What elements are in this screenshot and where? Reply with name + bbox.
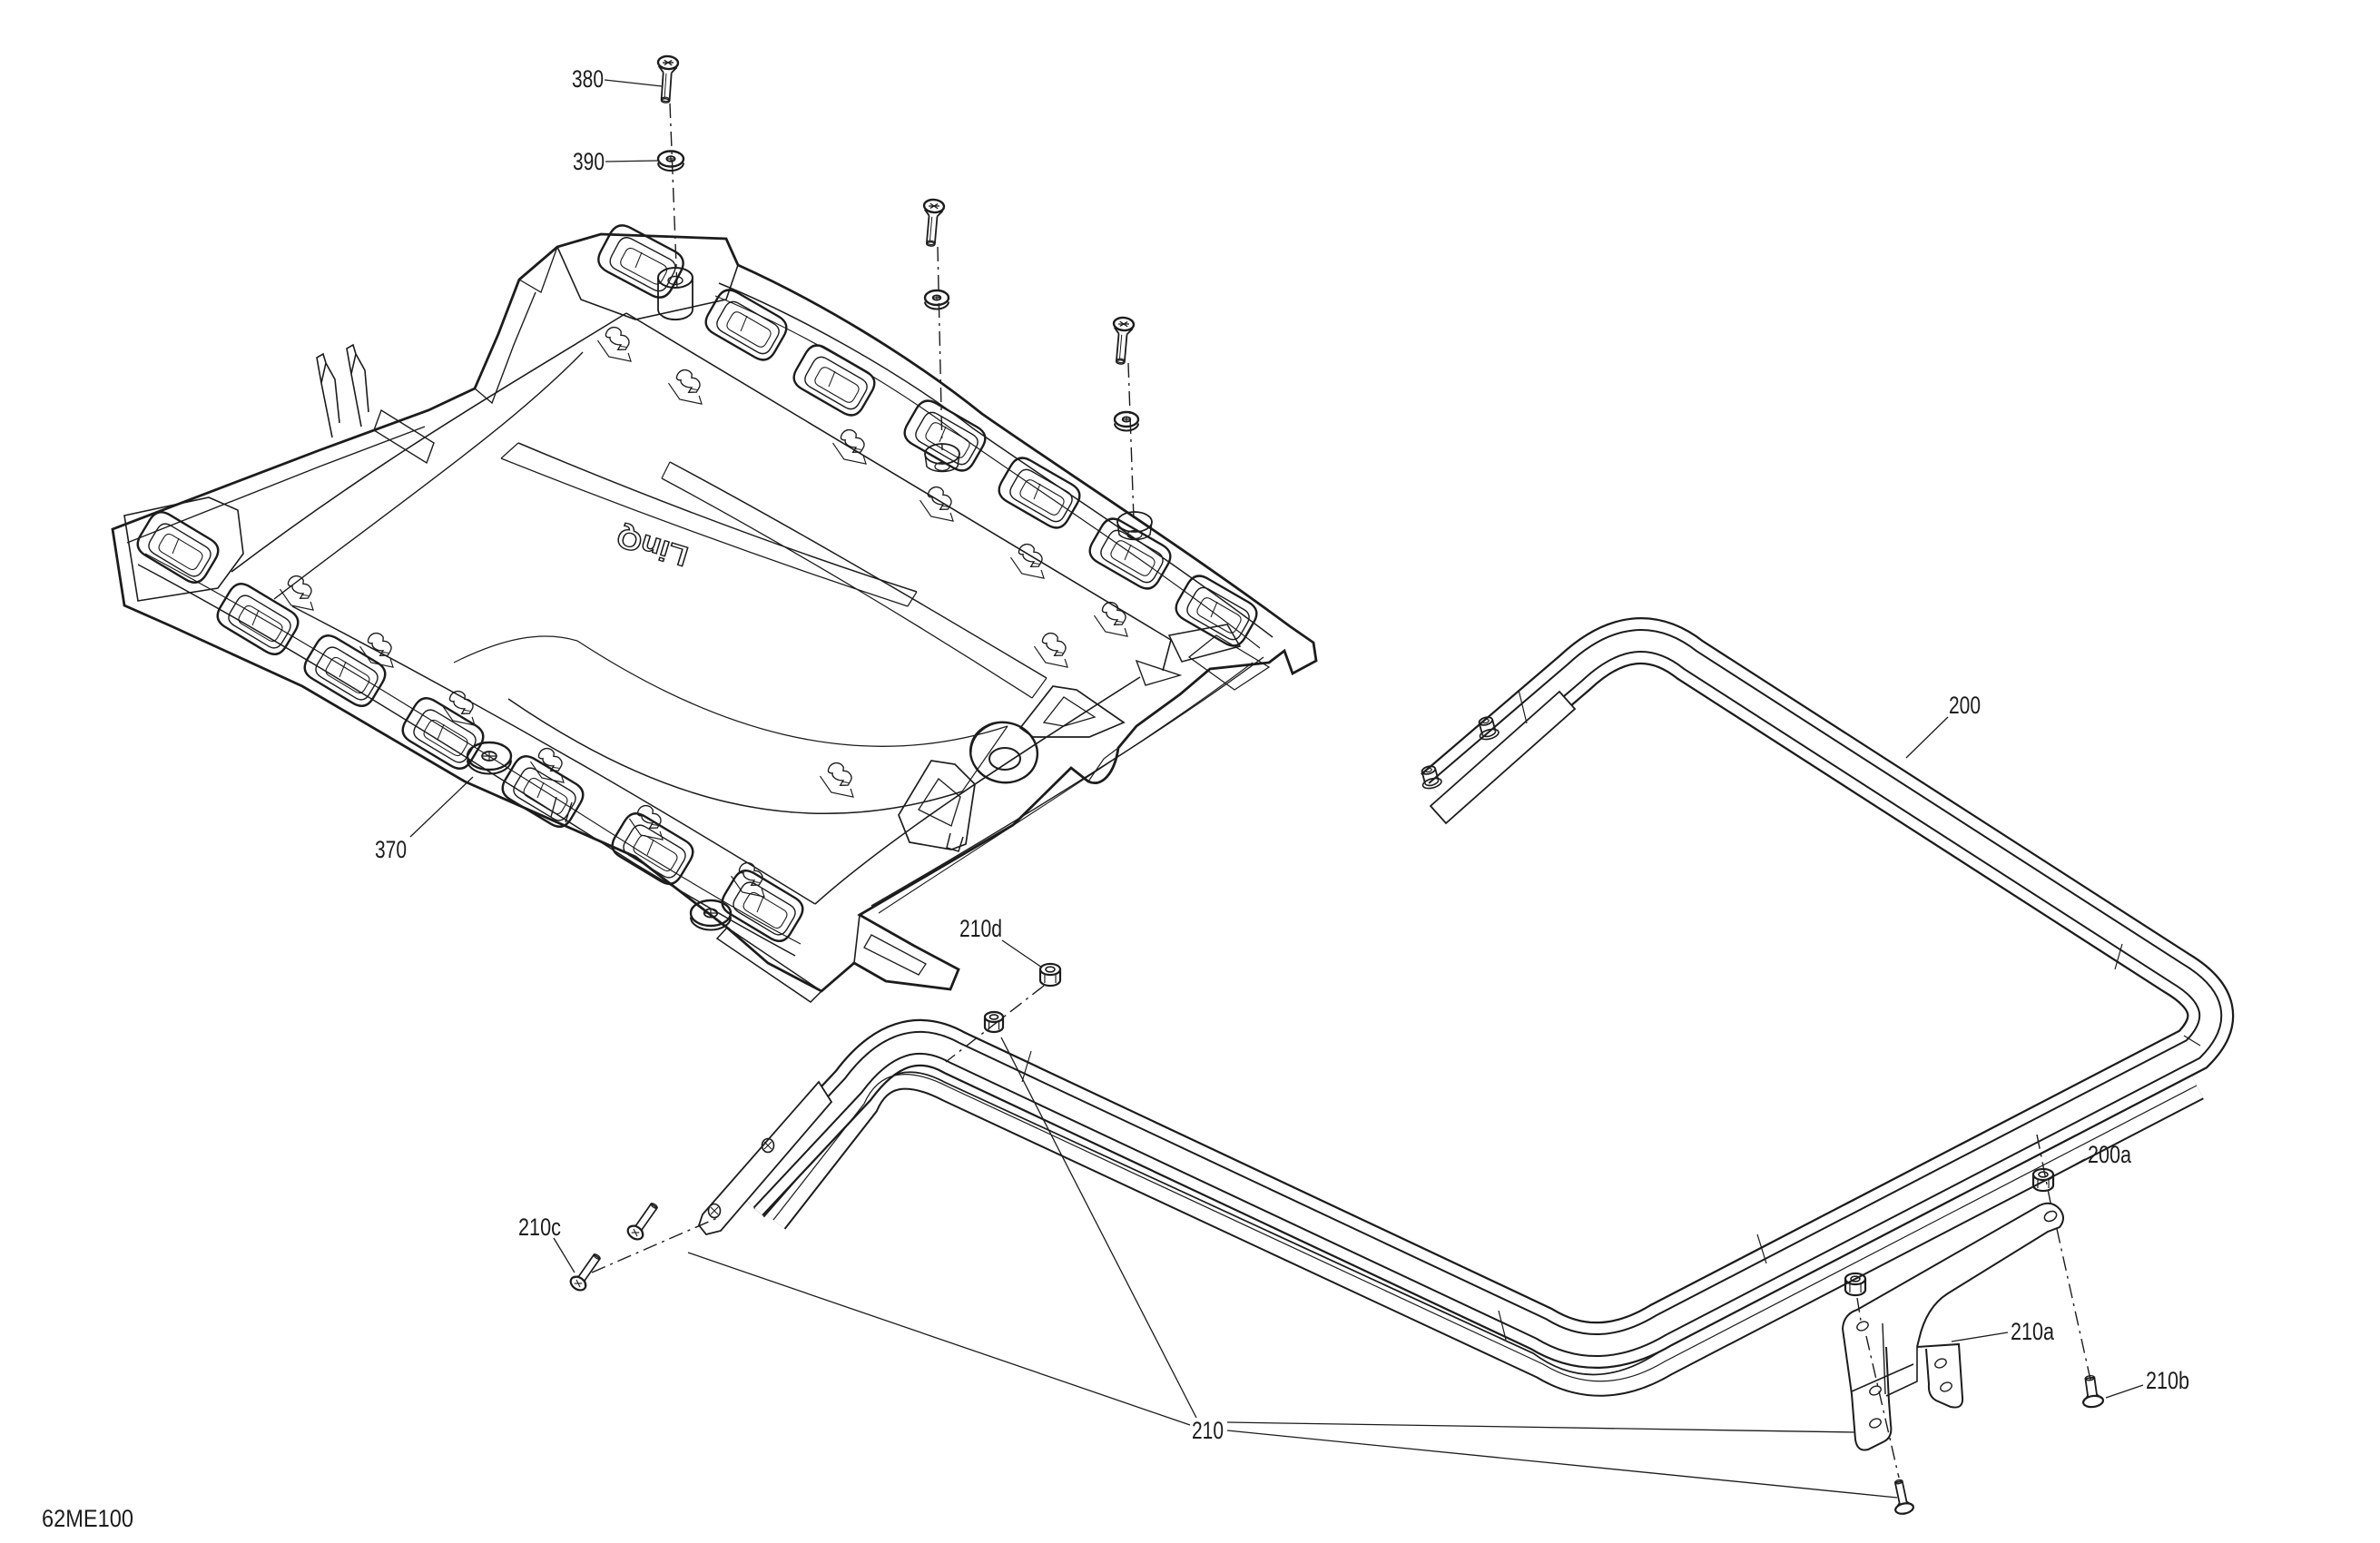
svg-text:200a: 200a [2088, 1141, 2132, 1168]
svg-text:210: 210 [1192, 1417, 1224, 1444]
svg-text:390: 390 [573, 148, 605, 175]
svg-text:210c: 210c [518, 1214, 561, 1241]
svg-text:210a: 210a [2011, 1318, 2055, 1345]
svg-text:LinQ: LinQ [613, 521, 692, 573]
svg-text:380: 380 [572, 65, 604, 93]
svg-text:210d: 210d [959, 915, 1002, 942]
svg-text:62ME100: 62ME100 [42, 1505, 133, 1532]
svg-text:370: 370 [375, 836, 407, 863]
svg-text:210b: 210b [2146, 1367, 2189, 1394]
svg-text:200: 200 [1949, 692, 1981, 719]
